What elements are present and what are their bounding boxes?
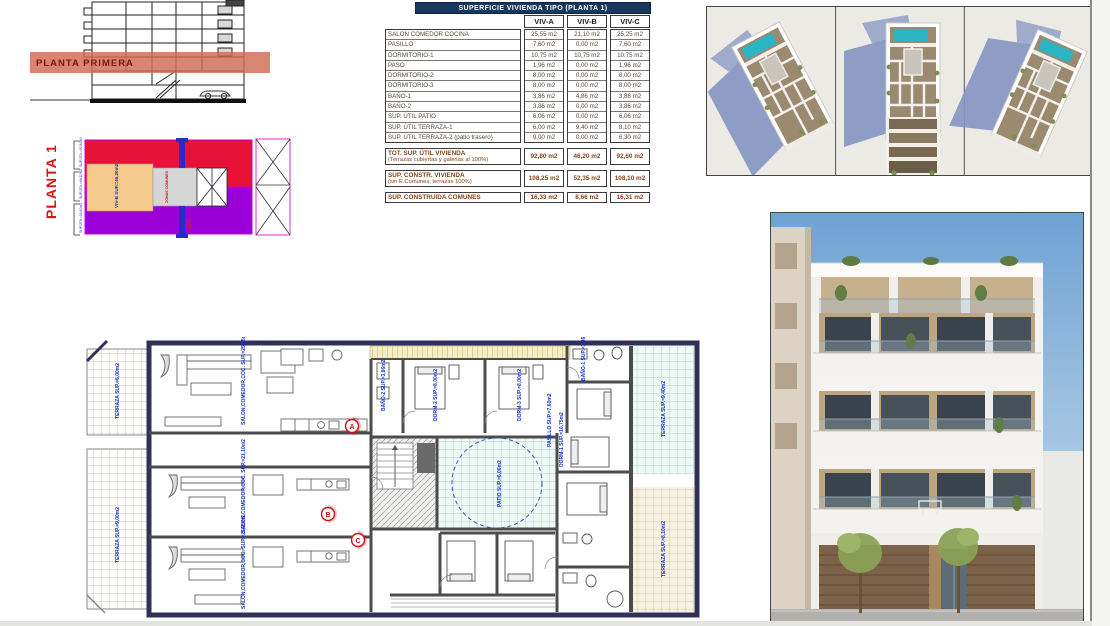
cell-value: 9,40 m2 [568, 123, 606, 133]
cell-value: 0,00 m2 [568, 61, 606, 71]
summary-value: 16,33 m2 [524, 192, 564, 203]
svg-text:TERRAZA SUP.=9,40m2: TERRAZA SUP.=9,40m2 [661, 381, 667, 437]
common-zone-label: ZONAS COMUNES [165, 170, 169, 203]
viv-b-zone [87, 164, 153, 211]
cell-value: 3,86 m2 [525, 102, 563, 112]
strip-label-viv-a: VIV-A [187, 150, 193, 163]
cell-value: 0,00 m2 [568, 112, 606, 122]
cell-value: 0,00 m2 [568, 81, 606, 91]
row-label: DORMITORIO-3 [386, 81, 520, 91]
elevator [417, 443, 435, 473]
strip-label-viv-c: VIV-C [187, 218, 193, 231]
row-label-column: SALON COMEDOR COCINA PASILLO DORMITORIO-… [385, 29, 521, 143]
common-zone [153, 168, 197, 206]
side-terrace-symbol [256, 139, 290, 235]
summary-value: 52,35 m2 [567, 170, 607, 187]
row-label: DORMITORIO-1 [386, 51, 520, 61]
key-plan-title: PLANTA 1 [43, 144, 59, 219]
surface-table-body: SALON COMEDOR COCINA PASILLO DORMITORIO-… [385, 29, 651, 143]
cell-value: 8,00 m2 [611, 71, 649, 81]
cell-value: 0,00 m2 [568, 102, 606, 112]
cell-value: 3,86 m2 [611, 102, 649, 112]
cell-value: 10,75 m2 [568, 51, 606, 61]
summary-row-constr-vivienda: SUP. CONSTR. VIVIENDA (sin E.Comunes, te… [385, 170, 651, 187]
svg-text:TERRAZA SUP.=6,00m2: TERRAZA SUP.=6,00m2 [115, 363, 121, 419]
row-label: SUP. ÚTIL TERRAZA-1 [386, 123, 520, 133]
cell-value: 7,60 m2 [611, 40, 649, 50]
cell-value: 21,10 m2 [568, 30, 606, 40]
cell-value: 8,00 m2 [611, 81, 649, 91]
svg-text:TERRAZA SUP.=8,10m2: TERRAZA SUP.=8,10m2 [661, 521, 667, 577]
gallery-strip [370, 346, 570, 359]
sheet-margin-right [1092, 0, 1110, 626]
summary-label: TOT. SUP. ÚTIL VIVIENDA [388, 150, 518, 157]
facade-render [770, 212, 1084, 624]
summary-value: 16,31 m2 [610, 192, 650, 203]
surface-table-header-row: VIV-A VIV-B VIV-C [385, 15, 651, 28]
svg-text:PATIO SUP.=6,06m2: PATIO SUP.=6,06m2 [497, 460, 503, 507]
summary-value: 92,60 m2 [610, 148, 650, 165]
cell-value: 7,60 m2 [525, 40, 563, 50]
cell-value: 6,06 m2 [611, 112, 649, 122]
summary-value: 108,10 m2 [610, 170, 650, 187]
cell-value: 10,75 m2 [525, 51, 563, 61]
building-section-drawing: PLANTA PRIMERA [30, 0, 280, 112]
svg-text:BAÑO-1 SUP.=3,86m2: BAÑO-1 SUP.=3,86m2 [580, 337, 587, 381]
cell-value: 25,25 m2 [611, 30, 649, 40]
cell-value: 0,00 m2 [568, 71, 606, 81]
svg-text:B: B [325, 512, 330, 519]
cell-value: 3,86 m2 [525, 92, 563, 102]
summary-row-total-util: TOT. SUP. ÚTIL VIVIENDA (Terrazas cubier… [385, 148, 651, 165]
row-label: PASILLO [386, 40, 520, 50]
column-header-viv-b: VIV-B [567, 15, 607, 28]
svg-text:TERRAZA SUP.=9,00m2: TERRAZA SUP.=9,00m2 [115, 507, 121, 563]
summary-value: 108,25 m2 [524, 170, 564, 187]
summary-value: 92,80 m2 [524, 148, 564, 165]
svg-text:DORM-1 SUP.=10,75m2: DORM-1 SUP.=10,75m2 [559, 412, 565, 467]
summary-sublabel: (Terrazas cubiertas y galerias al 100%) [388, 157, 518, 163]
bracket-label-viv-a: SUP.ÚTIL=92,80m2 [78, 137, 83, 167]
viv-a-value-column: 25,55 m2 7,60 m2 10,75 m2 1,96 m2 8,00 m… [524, 29, 564, 143]
cell-value: 0,00 m2 [568, 133, 606, 142]
cell-value: 8,00 m2 [525, 71, 563, 81]
aerial-renders-strip [706, 6, 1094, 176]
surface-table-title: SUPERFICIE VIVIENDA TIPO (PLANTA 1) [415, 2, 651, 14]
summary-label: SUP. CONSTRUIDA COMUNES [388, 194, 518, 201]
cell-value: 25,55 m2 [525, 30, 563, 40]
bracket-label-viv-b: SUP.ÚTIL=46,20m2 [78, 169, 83, 199]
viv-b-value-column: 21,10 m2 0,00 m2 10,75 m2 0,00 m2 0,00 m… [567, 29, 607, 143]
viv-b-block-label: VIV-B SUP.=46,20m2 [114, 163, 119, 208]
cell-value: 4,86 m2 [568, 92, 606, 102]
cell-value: 1,96 m2 [525, 61, 563, 71]
stair-core [371, 437, 437, 529]
cell-value: 10,75 m2 [611, 51, 649, 61]
bracket-label-viv-c: SUP.ÚTIL=92,60m2 [78, 203, 83, 233]
summary-value: 8,66 m2 [567, 192, 607, 203]
floor-plan-drawing: TERRAZA SUP.=6,00m2 TERRAZA SUP.=9,00m2 … [85, 337, 705, 623]
row-label: PASO [386, 61, 520, 71]
key-plan-diagram: PLANTA 1 SUP.ÚTIL=92,80m2 SUP.ÚTIL=46,20… [40, 135, 292, 241]
svg-text:SALON,COMEDOR,COC. SUP.=25,25m: SALON,COMEDOR,COC. SUP.=25,25m2 [241, 515, 247, 609]
svg-text:DORM-2 SUP.=8,00m2: DORM-2 SUP.=8,00m2 [433, 369, 439, 421]
summary-sublabel: (sin E.Comunes, terrazas 100%) [388, 179, 518, 185]
row-label: BAÑO-1 [386, 92, 520, 102]
neighbor-building-right [1043, 451, 1083, 623]
svg-text:C: C [355, 538, 360, 545]
section-band-label: PLANTA PRIMERA [36, 58, 134, 69]
row-label: SALON COMEDOR COCINA [386, 30, 520, 40]
neighbor-building-left [771, 227, 811, 623]
viv-c-value-column: 25,25 m2 7,60 m2 10,75 m2 1,96 m2 8,00 m… [610, 29, 650, 143]
column-header-viv-a: VIV-A [524, 15, 564, 28]
cell-value: 3,86 m2 [611, 92, 649, 102]
summary-value: 46,20 m2 [567, 148, 607, 165]
cell-value: 9,00 m2 [525, 133, 563, 142]
svg-text:BAÑO-2 SUP.=3,86m2: BAÑO-2 SUP.=3,86m2 [380, 359, 387, 411]
cell-value: 0,00 m2 [568, 40, 606, 50]
svg-text:PASILLO SUP.=7,60m2: PASILLO SUP.=7,60m2 [547, 393, 553, 447]
svg-text:A: A [349, 424, 354, 431]
summary-row-comunes: SUP. CONSTRUIDA COMUNES 16,33 m2 8,66 m2… [385, 192, 651, 203]
cell-value: 1,96 m2 [611, 61, 649, 71]
cell-value: 6,06 m2 [525, 112, 563, 122]
summary-label: SUP. CONSTR. VIVIENDA [388, 172, 518, 179]
cell-value: 6,30 m2 [611, 133, 649, 142]
row-label: SUP. ÚTIL TERRAZA-2 (patio trasero) [386, 133, 520, 142]
row-label: SUP. ÚTIL PATIO [386, 112, 520, 122]
cell-value: 6,00 m2 [525, 123, 563, 133]
svg-text:DORM-3 SUP.=8,00m2: DORM-3 SUP.=8,00m2 [517, 369, 523, 421]
surface-table: SUPERFICIE VIVIENDA TIPO (PLANTA 1) VIV-… [385, 2, 651, 203]
architectural-plan-sheet: PLANTA PRIMERA PLANTA 1 SUP.ÚTIL=92,80m2… [0, 0, 1110, 626]
sheet-margin-bottom [0, 621, 1092, 626]
column-header-viv-c: VIV-C [610, 15, 650, 28]
stair-core-symbol [197, 168, 227, 206]
cell-value: 8,10 m2 [611, 123, 649, 133]
row-label: BAÑO-2 [386, 102, 520, 112]
cell-value: 8,00 m2 [525, 81, 563, 91]
row-label: DORMITORIO-2 [386, 71, 520, 81]
svg-text:SALON,COMEDOR,COC. SUP.=25,55m: SALON,COMEDOR,COC. SUP.=25,55m2 [241, 337, 247, 425]
